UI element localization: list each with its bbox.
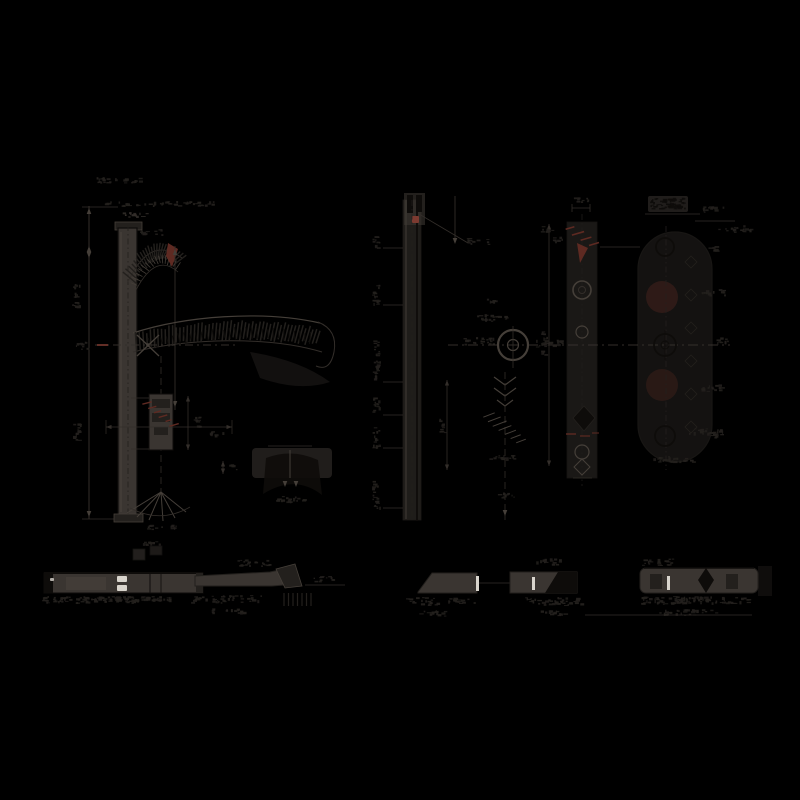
- screenshot-root: [0, 0, 800, 800]
- view-plate-edge: [372, 193, 468, 521]
- view-strip-section: [541, 197, 599, 486]
- view-grip-end-detail: [252, 446, 332, 503]
- technical-drawing-canvas: [0, 0, 800, 800]
- view-escutcheon-front: [600, 196, 753, 470]
- view-bottom-plans: [42, 541, 772, 616]
